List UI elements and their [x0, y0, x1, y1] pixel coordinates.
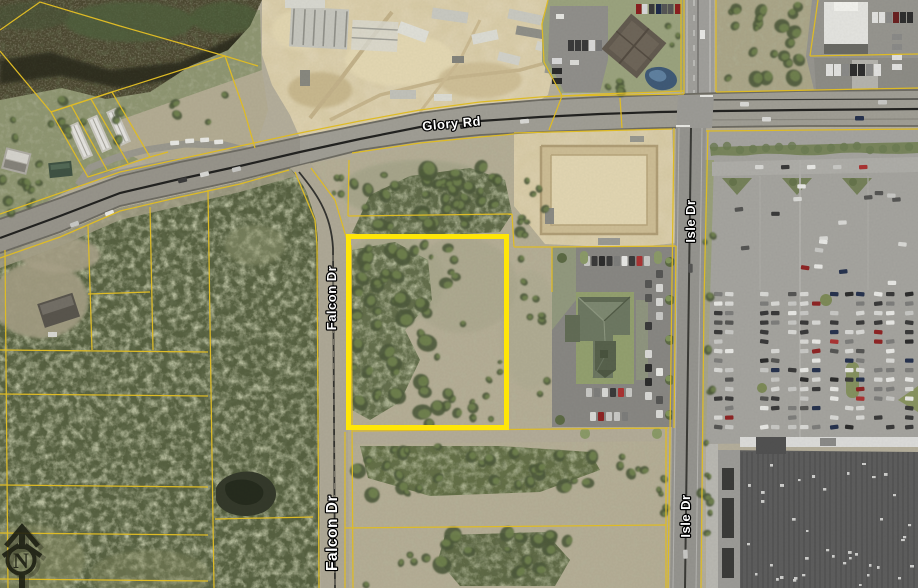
svg-text:Falcon Dr: Falcon Dr [324, 495, 341, 571]
svg-text:Isle Dr: Isle Dr [683, 199, 698, 242]
svg-text:Falcon Dr: Falcon Dr [324, 266, 339, 330]
svg-text:N: N [13, 548, 29, 573]
svg-text:Isle Dr: Isle Dr [678, 494, 693, 537]
